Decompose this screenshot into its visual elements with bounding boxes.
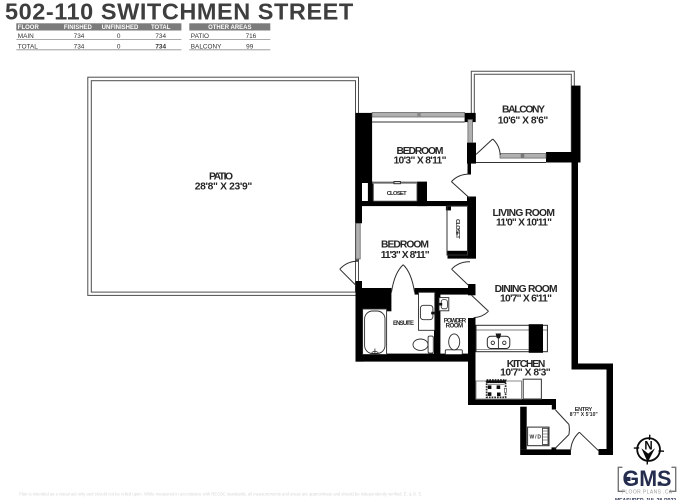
svg-text:ENSUITE: ENSUITE — [393, 321, 414, 327]
svg-text:28'8" X 23'9": 28'8" X 23'9" — [195, 182, 253, 193]
svg-text:FINISHED: FINISHED — [64, 25, 93, 31]
svg-text:Plan is intended as a visual a: Plan is intended as a visual aid only an… — [19, 491, 422, 496]
svg-text:CLOSET: CLOSET — [454, 219, 460, 239]
svg-text:MAIN: MAIN — [18, 33, 34, 40]
svg-text:11'0" X 10'11": 11'0" X 10'11" — [496, 218, 552, 229]
svg-text:UNFINISHED: UNFINISHED — [102, 25, 139, 31]
svg-text:11'3" X 8'11": 11'3" X 8'11" — [381, 250, 430, 261]
svg-text:BEDROOM: BEDROOM — [381, 239, 429, 250]
svg-text:CLOSET: CLOSET — [387, 191, 407, 197]
svg-text:734: 734 — [74, 33, 85, 40]
svg-text:BALCONY: BALCONY — [191, 43, 222, 50]
svg-text:716: 716 — [246, 33, 257, 40]
svg-text:PATIO: PATIO — [191, 33, 209, 40]
svg-text:W/D: W/D — [530, 435, 542, 441]
svg-text:0: 0 — [117, 33, 121, 40]
svg-text:10'3" X 8'11": 10'3" X 8'11" — [394, 155, 447, 166]
svg-text:99: 99 — [246, 43, 254, 50]
svg-text:N: N — [644, 440, 652, 452]
svg-text:BALCONY: BALCONY — [502, 104, 545, 115]
svg-text:734: 734 — [74, 43, 85, 50]
svg-text:OTHER AREAS: OTHER AREAS — [208, 25, 251, 31]
svg-text:10'7" X 8'3": 10'7" X 8'3" — [500, 368, 551, 379]
svg-text:10'7" X 6'11": 10'7" X 6'11" — [500, 294, 552, 305]
svg-text:734: 734 — [155, 33, 166, 40]
svg-text:TOTAL: TOTAL — [151, 25, 171, 31]
svg-text:502-110 SWITCHMEN STREET: 502-110 SWITCHMEN STREET — [5, 0, 354, 25]
svg-text:734: 734 — [155, 43, 166, 50]
svg-text:10'6" X 8'6": 10'6" X 8'6" — [498, 115, 549, 126]
svg-text:0: 0 — [117, 43, 121, 50]
svg-text:8'7" X 5'10": 8'7" X 5'10" — [570, 412, 599, 418]
svg-text:TOTAL: TOTAL — [18, 43, 38, 50]
svg-text:FLOOR: FLOOR — [18, 25, 40, 31]
svg-text:ROOM: ROOM — [446, 323, 464, 330]
svg-text:FLOOR PLANS .CA: FLOOR PLANS .CA — [622, 489, 673, 495]
